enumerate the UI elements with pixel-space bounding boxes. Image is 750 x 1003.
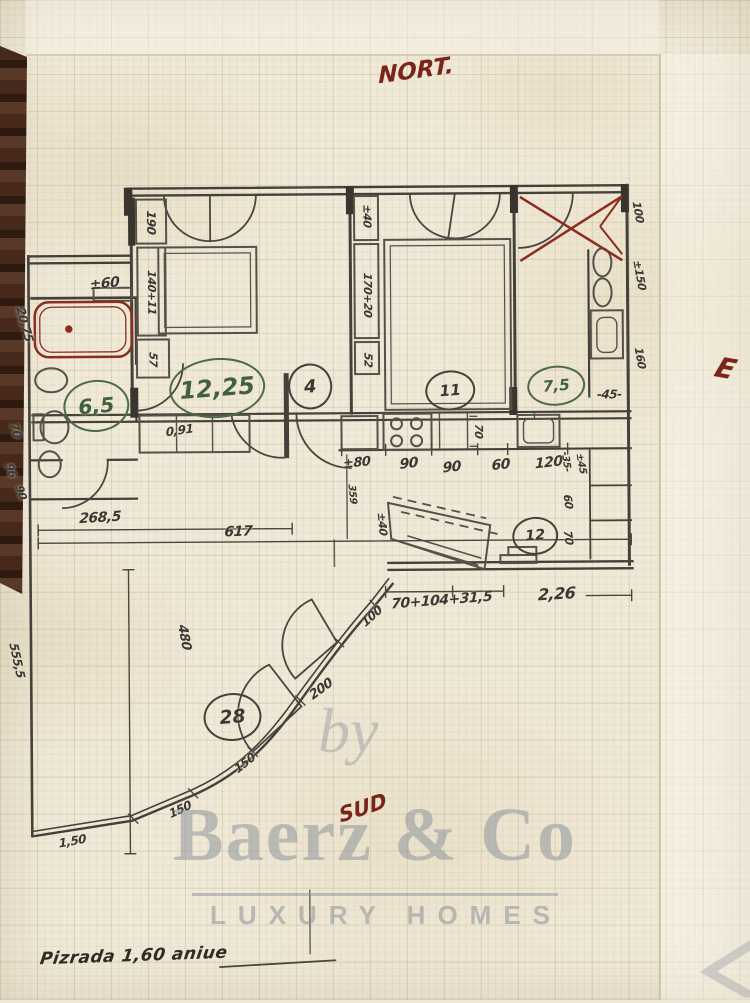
wc-fixture-2 xyxy=(593,278,611,306)
dim-label: 359 xyxy=(346,484,359,503)
dim-label: 90 xyxy=(400,455,418,473)
dim-label: -45- xyxy=(596,387,622,401)
dim-label: 2,26 xyxy=(538,583,576,604)
dim-label: 90 xyxy=(443,458,461,476)
red-pen-marks xyxy=(34,196,623,357)
watermark-brand: Baerz & Co xyxy=(150,792,600,879)
watermark-divider xyxy=(192,893,558,896)
dim-label: 57 xyxy=(146,352,159,368)
bedroom1-door-arc xyxy=(164,195,256,243)
watermark-tagline: LUXURY HOMES xyxy=(150,900,610,931)
terrace-door-arc-2 xyxy=(282,599,337,678)
watermark-corner-mark xyxy=(708,943,750,997)
bathtub xyxy=(35,302,132,358)
dim-480 xyxy=(122,570,136,854)
bed-1 xyxy=(158,247,257,334)
bidet xyxy=(39,451,61,477)
dim-label: 70 xyxy=(561,530,576,545)
dim-label: ±80 xyxy=(343,454,370,472)
dim-label: 70 xyxy=(472,423,485,439)
dim-label: 190 xyxy=(144,210,158,235)
dim-268 xyxy=(38,523,292,537)
entry-door-arc xyxy=(62,460,108,508)
dim-label: ±60 xyxy=(90,274,120,293)
closet-cross-extra xyxy=(600,196,622,254)
dim-label: 60 xyxy=(560,494,575,509)
dim-label: ±40 xyxy=(360,204,373,228)
dim-label: 268,5 xyxy=(79,509,121,528)
dim-label: 170+20 xyxy=(361,272,374,318)
watermark-by: by xyxy=(318,694,378,768)
burner xyxy=(411,435,422,446)
dim-label: 52 xyxy=(361,352,374,368)
bathtub-drain xyxy=(66,327,71,332)
note-underline xyxy=(219,960,336,967)
burner xyxy=(391,435,402,446)
dim-label: ±40 xyxy=(375,512,390,535)
dim-label: 60 xyxy=(492,456,510,474)
dim-226 xyxy=(586,589,632,601)
bath-sink xyxy=(35,368,67,392)
dim-label: 140+11 xyxy=(145,270,158,316)
bedroom2-door-arc xyxy=(410,193,500,239)
dim-label: 617 xyxy=(224,523,253,540)
